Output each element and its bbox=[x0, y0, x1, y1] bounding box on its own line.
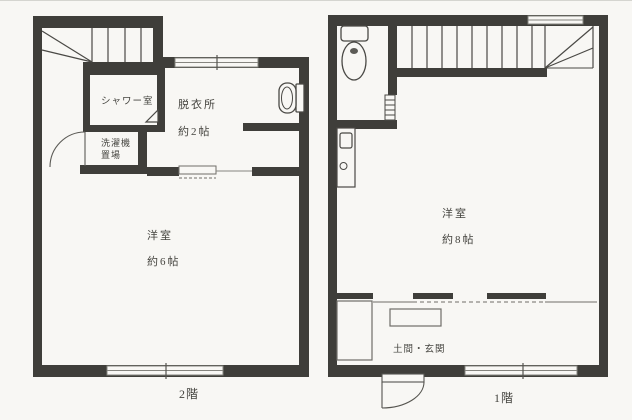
label-washer-2: 置場 bbox=[101, 151, 121, 160]
wall-1f-doma-seg2 bbox=[413, 293, 453, 299]
entrance-door-icon bbox=[382, 374, 424, 408]
toilet-1f-icon bbox=[341, 26, 368, 80]
wall-2f-shower-bottom bbox=[83, 125, 165, 132]
label-floor-2f: 2階 bbox=[179, 388, 199, 400]
wall-1f-doma-seg3 bbox=[487, 293, 546, 299]
floorplan-canvas: シャワー室 脱衣所 約2帖 洗濯機 置場 洋室 約6帖 2階 洋室 約8帖 土間… bbox=[0, 0, 632, 420]
wall-2f-divider-left bbox=[147, 167, 179, 176]
stairs-1f-icon bbox=[412, 26, 593, 68]
entry-step bbox=[390, 309, 441, 326]
wall-1f-doma-seg1 bbox=[328, 293, 373, 299]
toilet-2f-icon bbox=[279, 83, 304, 113]
label-room-2f-size: 約6帖 bbox=[147, 257, 181, 268]
storage-box bbox=[337, 301, 372, 360]
wall-1f-toilet-right bbox=[388, 15, 397, 95]
label-floor-1f: 1階 bbox=[494, 392, 514, 404]
label-washer-1: 洗濯機 bbox=[101, 139, 131, 148]
wall-1f-left bbox=[328, 15, 337, 377]
wall-1f-stair-bottom bbox=[390, 68, 547, 77]
wall-2f-left bbox=[33, 16, 42, 377]
label-room-2f: 洋室 bbox=[147, 231, 173, 242]
stairs-2f-icon bbox=[42, 28, 141, 62]
wall-2f-stair-bottom bbox=[83, 62, 165, 75]
wall-2f-stair-top bbox=[33, 16, 163, 28]
wall-2f-toilet-nook bbox=[243, 123, 299, 131]
wall-2f-stair-right bbox=[153, 16, 163, 68]
label-entrance: 土間・玄関 bbox=[393, 346, 446, 356]
door-swing-2f-icon bbox=[50, 132, 85, 167]
floorplan-drawing bbox=[0, 0, 632, 420]
wall-2f-landing-door bbox=[80, 165, 147, 174]
label-room-1f-size: 約8帖 bbox=[442, 235, 476, 246]
wall-1f-right bbox=[599, 15, 608, 377]
wall-2f-shower-left bbox=[83, 68, 90, 132]
label-dressing-size: 約2帖 bbox=[178, 127, 212, 138]
shower-door-icon bbox=[146, 110, 158, 122]
wall-2f-divider-right bbox=[252, 167, 299, 176]
label-dressing-room: 脱衣所 bbox=[178, 100, 217, 111]
kitchen-sink-icon bbox=[337, 128, 355, 187]
folding-door-1f-icon bbox=[385, 95, 395, 120]
label-room-1f: 洋室 bbox=[442, 209, 468, 220]
label-shower-room: シャワー室 bbox=[101, 98, 154, 108]
window-1f-top-icon bbox=[528, 16, 583, 24]
floor-2f-plan bbox=[33, 16, 309, 377]
sliding-door-2f-icon bbox=[179, 166, 252, 178]
